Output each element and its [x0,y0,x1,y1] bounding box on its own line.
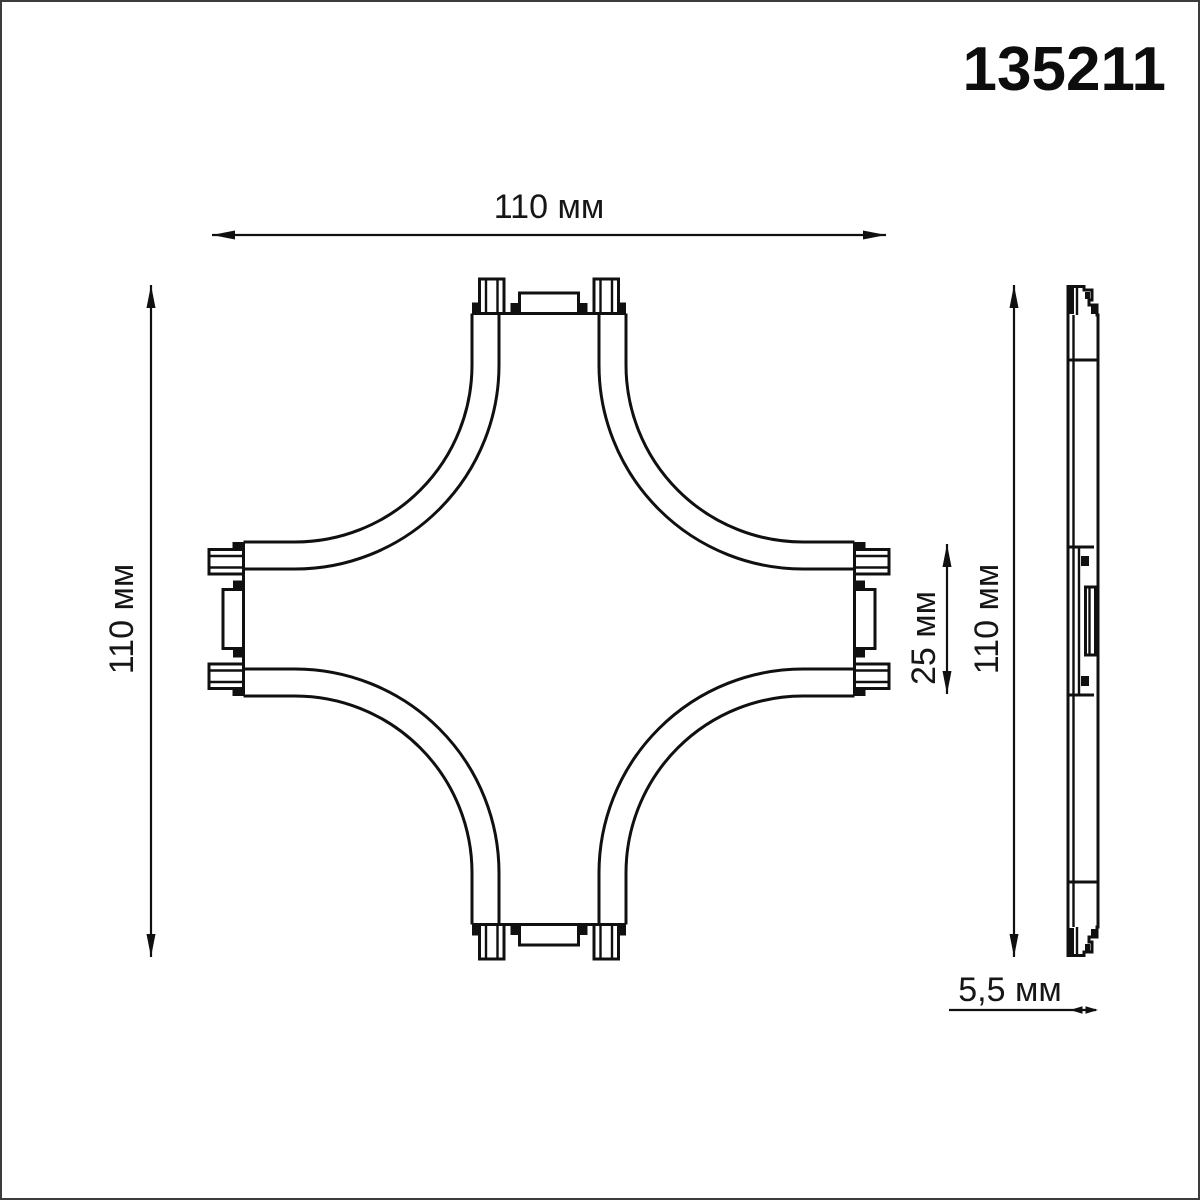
side-view [1068,285,1098,957]
wall-top-right [599,314,855,570]
part-number: 135211 [963,35,1166,104]
arrowhead-right [1086,1006,1099,1014]
arm-end-top [472,279,626,314]
arm-end-right [855,542,890,696]
dim-label-side-thickness: 5,5 мм [958,971,1061,1009]
dim-side-height: 110 мм [968,285,1019,957]
arrowhead-up [943,544,952,567]
dim-label-side-height: 110 мм [968,564,1006,674]
dim-connector-width: 25 мм [905,544,952,694]
front-view [209,279,889,959]
wall-top-left [244,314,500,570]
arrowhead-down [943,671,952,694]
arrowhead-down [1010,934,1019,957]
wall-bottom-left [244,669,500,925]
arm-end-left [209,542,244,696]
wall-bottom-right [599,669,855,925]
arrowhead-left [212,231,235,240]
arrowhead-up [1010,285,1019,308]
dim-front-height: 110 мм [103,285,156,957]
drawing-canvas: 110 мм 110 мм 25 мм 110 мм 5,5 мм 135211 [2,2,1200,1200]
dim-label-front-width: 110 мм [494,188,604,226]
arrowhead-down [147,934,156,957]
dim-front-width: 110 мм [212,188,886,240]
arm-end-bottom [472,925,626,960]
arrowhead-right [863,231,886,240]
dim-side-thickness: 5,5 мм [949,971,1098,1014]
dim-label-connector-width: 25 мм [905,591,943,685]
arrowhead-up [147,285,156,308]
technical-drawing-page: 110 мм 110 мм 25 мм 110 мм 5,5 мм 135211 [0,0,1200,1200]
dim-label-front-height: 110 мм [103,564,141,674]
arrowhead-left [1070,1006,1083,1014]
